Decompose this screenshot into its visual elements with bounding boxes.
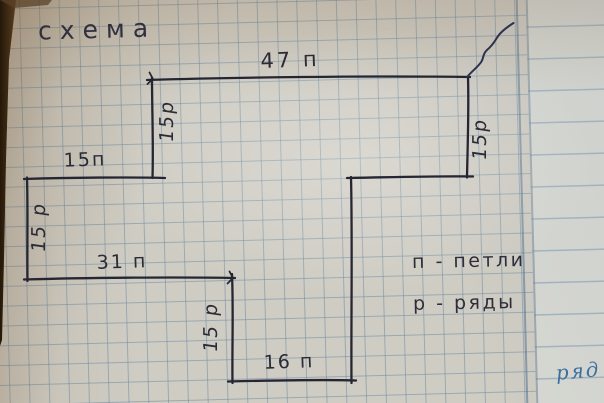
dimension-label-right-rows: 15р <box>469 116 491 161</box>
outline-mid-vertical-edge <box>232 274 233 383</box>
legend-rows: р - ряды <box>413 291 516 315</box>
dimension-label-bottom-stitches: 16 п <box>263 350 314 374</box>
outline-neck-vertical-edge <box>152 78 153 178</box>
outline-bottom-edge <box>228 380 356 381</box>
notebook-edge-dark <box>0 0 16 346</box>
outline-top-edge <box>147 76 470 80</box>
outline-inner-right-edge <box>351 177 352 383</box>
legend-stitches: п - петли <box>412 249 526 273</box>
knitting-schema-photo: схема 47 п 15р 15п 15 р 31 п 15 р 16 п 1… <box>0 0 604 403</box>
dimension-label-shoulder-stitches: 15п <box>63 148 106 171</box>
dimension-label-neck-rows: 15р <box>156 98 178 143</box>
pen-squiggle <box>467 23 514 77</box>
outline-step-horizontal-edge <box>347 176 473 178</box>
dimension-label-top-stitches: 47 п <box>260 47 320 73</box>
dimension-label-middle-stitches: 31 п <box>96 250 147 274</box>
schema-title: схема <box>38 13 157 45</box>
margin-note-blue: ряд <box>555 357 602 385</box>
dimension-label-middle-rows: 15 р <box>200 300 222 353</box>
dimension-label-left-rows: 15 р <box>28 200 50 253</box>
outline-shoulder-edge <box>24 177 165 179</box>
outline-middle-horizontal-edge <box>24 278 235 280</box>
